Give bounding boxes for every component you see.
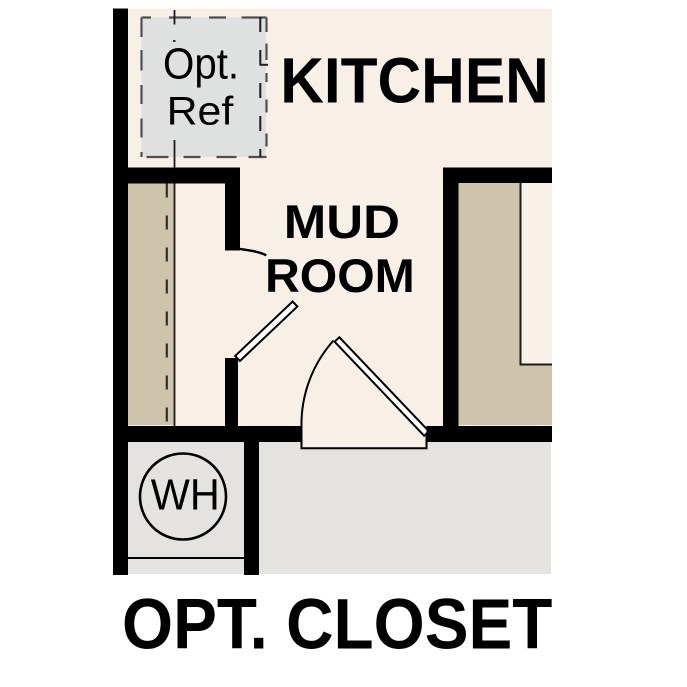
svg-text:ROOM: ROOM — [265, 250, 415, 303]
svg-text:MUD: MUD — [284, 196, 400, 249]
svg-text:Opt.: Opt. — [163, 40, 239, 88]
svg-text:KITCHEN: KITCHEN — [280, 45, 549, 117]
svg-text:Ref: Ref — [167, 90, 235, 134]
svg-text:OPT. CLOSET: OPT. CLOSET — [122, 584, 553, 664]
svg-text:WH: WH — [151, 471, 220, 519]
